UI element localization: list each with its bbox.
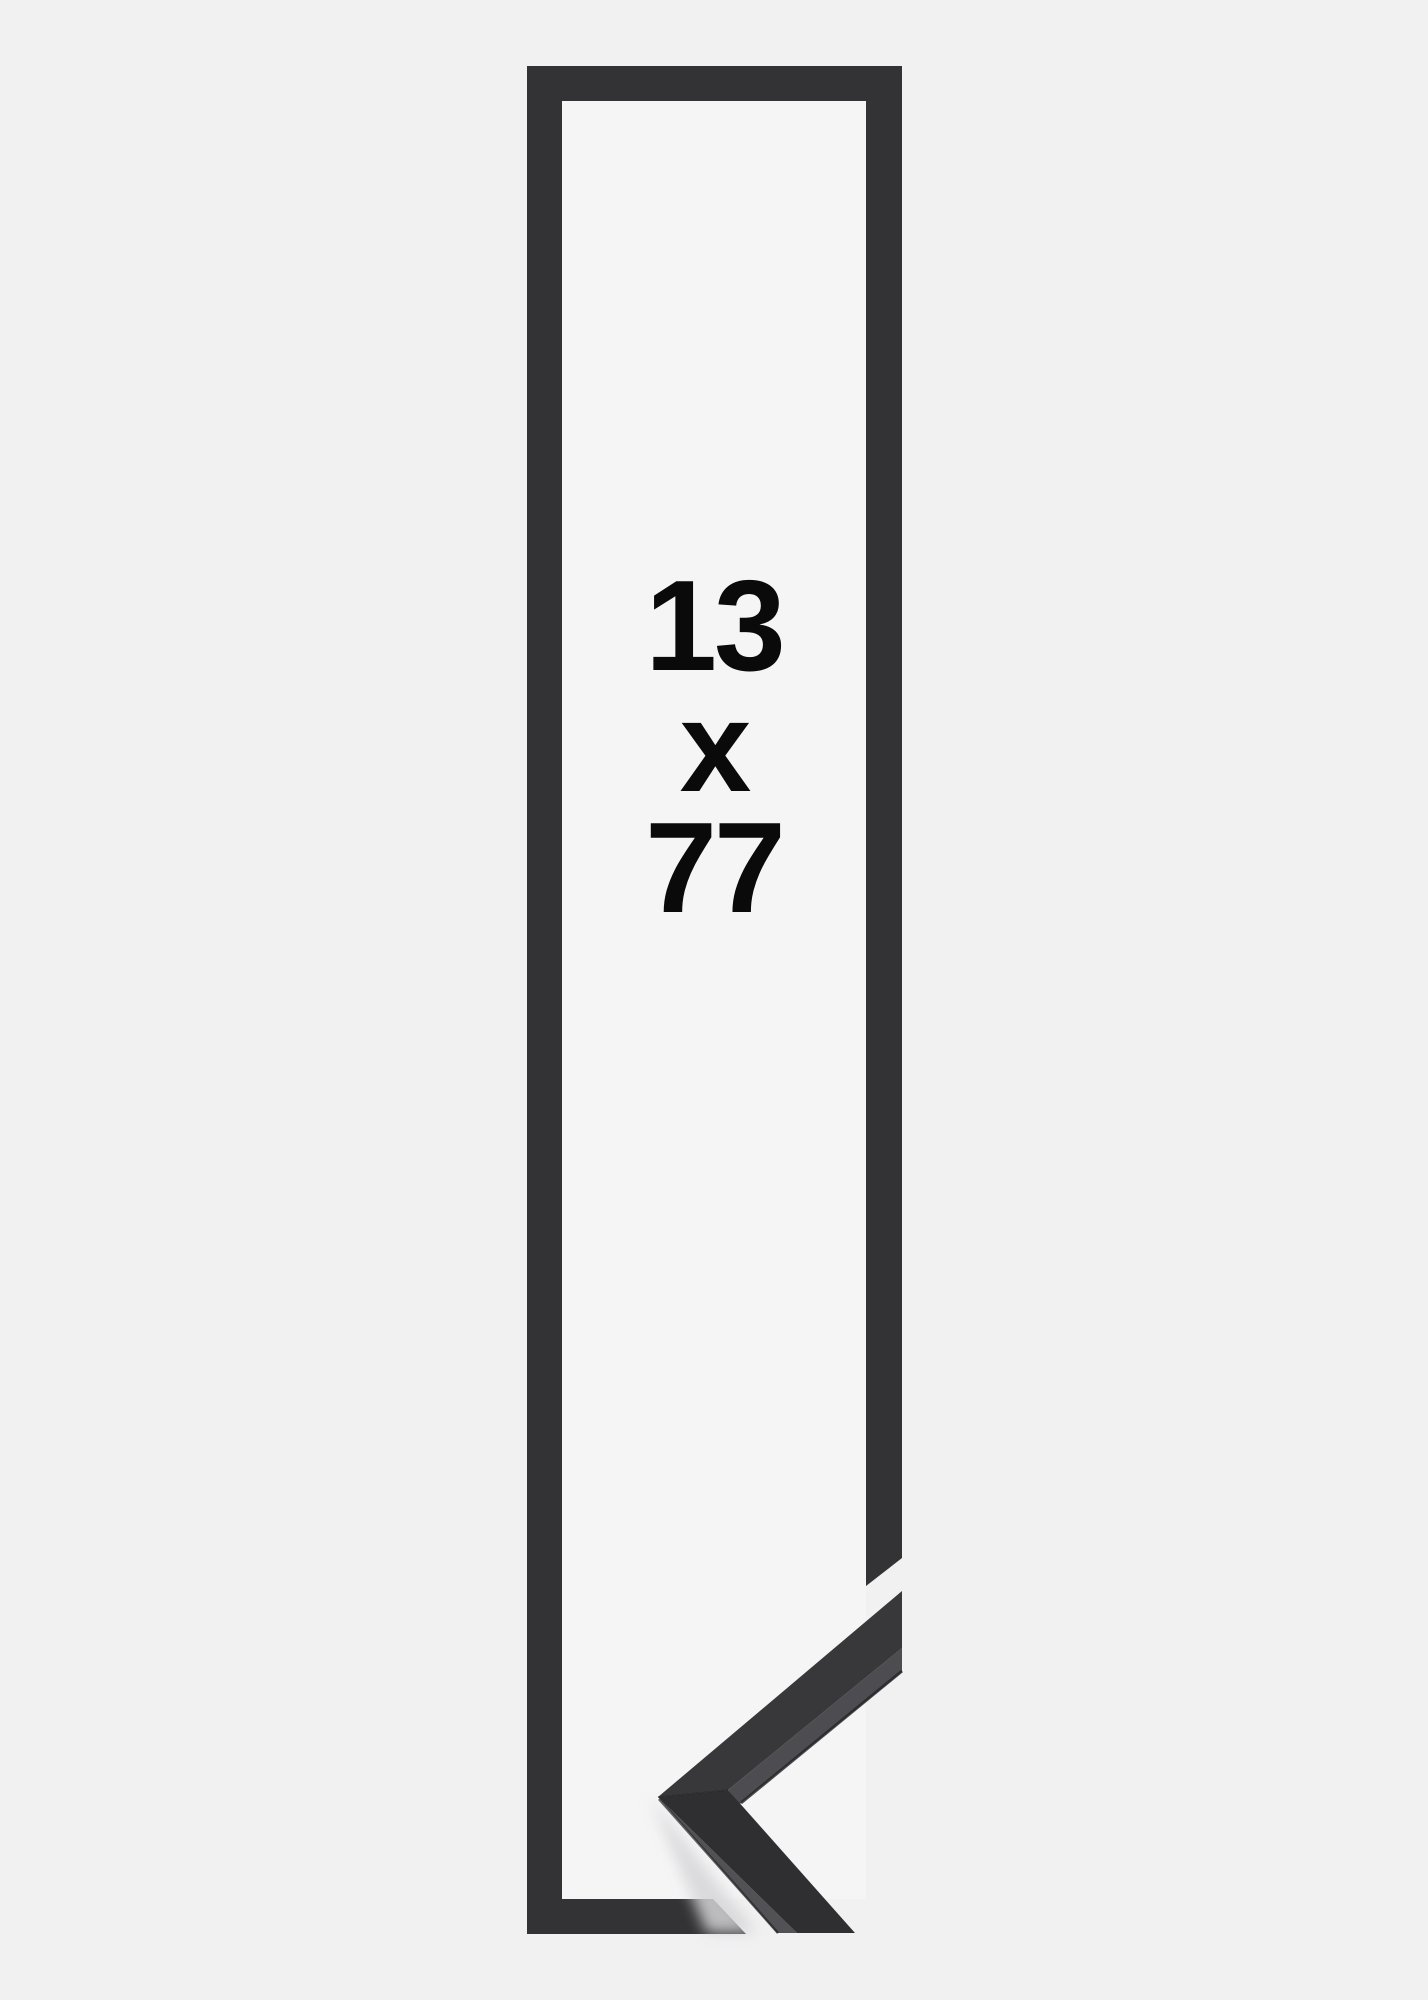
frame-interior bbox=[562, 101, 866, 1899]
frame-top-bar bbox=[527, 66, 902, 101]
frame-left-bar bbox=[527, 66, 562, 1934]
product-image: 13 x 77 bbox=[0, 0, 1428, 2000]
size-width-value: 13 bbox=[645, 566, 783, 687]
frame-graphic bbox=[0, 0, 1428, 2000]
size-label: 13 x 77 bbox=[562, 566, 866, 929]
size-height-value: 77 bbox=[645, 808, 783, 929]
size-separator: x bbox=[680, 687, 749, 808]
frame-right-bar bbox=[866, 66, 902, 1586]
